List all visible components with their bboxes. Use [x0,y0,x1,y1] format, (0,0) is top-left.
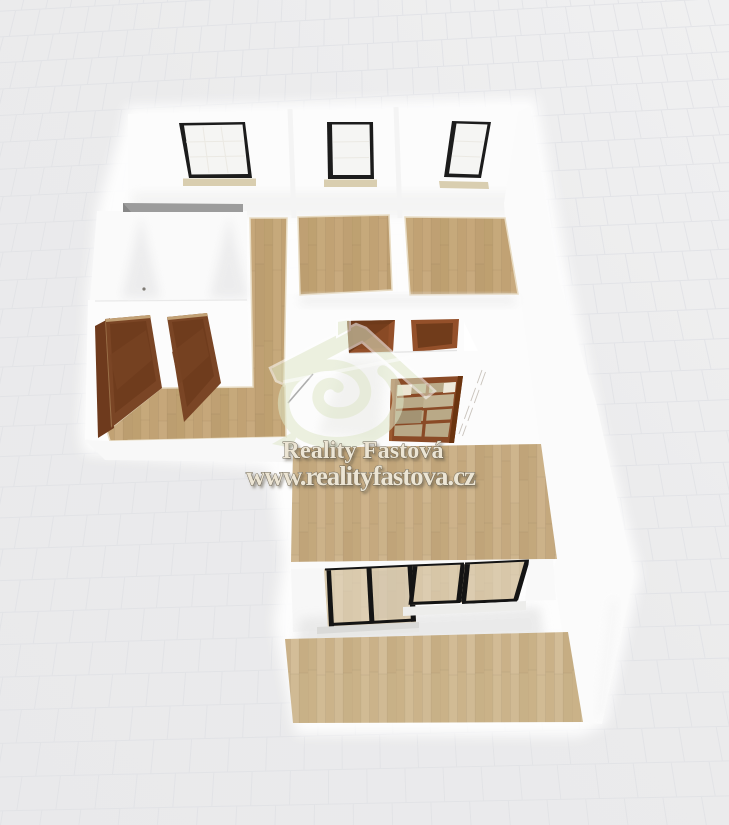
svg-text:www.realityfastova.cz: www.realityfastova.cz [246,461,476,491]
